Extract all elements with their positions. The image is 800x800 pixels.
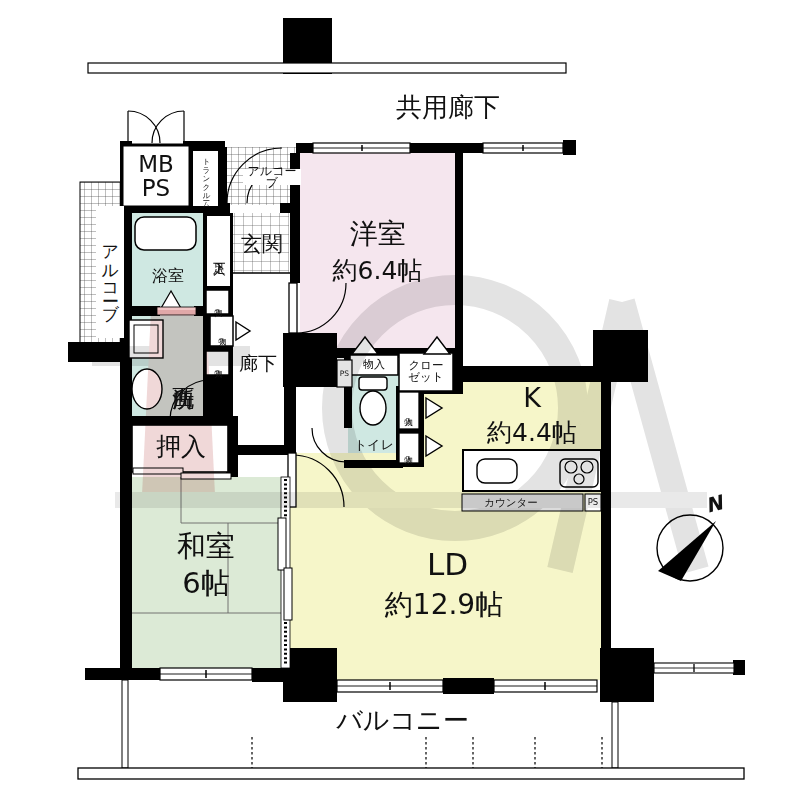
living-size: 約12.9帖 [368,589,520,621]
western-room-door-leaf [289,283,297,333]
storage-label-2: 物入 [211,317,232,345]
sink-icon [477,459,517,483]
toilet-tank-icon [359,377,387,390]
storage-label-t2: 物入 [400,434,418,462]
toilet-bowl-icon [360,391,386,425]
bath-label: 浴室 [147,266,189,286]
side-alcove-label: アルコーブ [96,206,124,338]
corridor-edge [88,63,566,73]
western-room-label: 洋室 [328,218,428,250]
japanese-room-window [160,668,252,680]
living-window-right [494,680,597,692]
floor-plan: 共用廊下 MB PS トランクルーム アルコーブ アルコーブ 下足入 玄関 洋室… [0,0,800,800]
storage-label-1: 物入 [207,291,228,313]
ps-counter-label: PS [584,495,602,510]
balcony-railing [78,768,744,779]
japanese-room-label: 和室 [170,530,242,563]
washroom-label: 洗面所 [168,320,198,420]
closet-label: クロー ゼット [401,355,451,389]
storage-label-toilet-top: 物入 [351,357,397,373]
ps-small-label: PS [337,365,352,383]
corridor-window [483,143,563,153]
meterbox-door-arc [152,111,184,143]
neighbor-rail [654,663,734,673]
storage-label-t1: 物入 [400,393,418,427]
balcony-left-edge [122,680,128,768]
balcony-drain-marks [252,737,602,768]
living-label: LD [420,547,475,583]
meterbox-door-arc [128,111,160,143]
toilet-label: トイレ [352,436,396,454]
balcony-label: バルコニー [325,705,480,735]
bathtub-icon [135,217,196,250]
hallway-label: 廊下 [233,352,283,376]
entry-alcove-label: アルコーブ [243,169,301,185]
western-room-size: 約6.4帖 [310,257,445,285]
meter-box-label: MB PS [124,149,188,204]
japanese-room-size: 6帖 [176,568,236,600]
shoe-box-label: 下足入 [209,221,229,285]
storage-label-3: 物入 [207,352,228,374]
entrance-label: 玄関 [233,232,291,258]
counter-label: カウンター [466,495,556,510]
kitchen-label: K [508,382,556,414]
western-room-window [313,143,410,153]
storage-arrow-marker [236,322,250,340]
trunk-room-label: トランクルーム [193,152,219,206]
oshiire-label: 押入 [148,432,214,462]
living-window-left [337,680,443,692]
balcony-partition [612,702,618,768]
kitchen-size: 約4.4帖 [472,419,592,447]
corridor-label: 共用廊下 [378,92,518,122]
